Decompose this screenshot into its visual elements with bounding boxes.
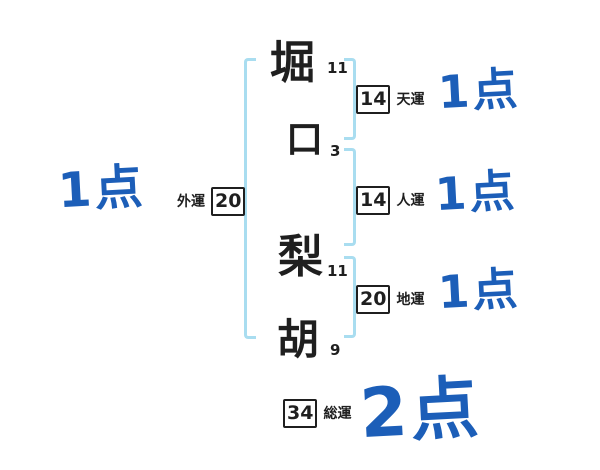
heaven-luck-row: 14 天運 xyxy=(356,85,424,114)
total-luck-label: 総運 xyxy=(323,407,351,421)
outer-luck-value-box: 20 xyxy=(211,187,245,216)
heaven-luck-value-box: 14 xyxy=(356,85,390,114)
name-fortune-diagram: 堀 11 口 3 梨 11 胡 9 14 天運 14 人運 20 地運 外運 2… xyxy=(0,0,600,470)
earth-luck-score: 1点 xyxy=(437,266,522,315)
earth-luck-row: 20 地運 xyxy=(356,285,424,314)
name-char-3: 梨 xyxy=(278,234,323,279)
person-luck-score: 1点 xyxy=(434,168,519,217)
person-luck-row: 14 人運 xyxy=(356,186,424,215)
person-luck-value-box: 14 xyxy=(356,186,390,215)
outer-luck-score: 1点 xyxy=(57,163,147,216)
earth-luck-label: 地運 xyxy=(396,293,424,307)
name-char-2: 口 xyxy=(286,121,323,158)
outer-luck-row: 外運 20 xyxy=(177,187,245,216)
stroke-count-2: 3 xyxy=(330,144,340,159)
name-char-4: 胡 xyxy=(277,319,319,361)
heaven-luck-score: 1点 xyxy=(437,66,522,115)
total-luck-score: 2点 xyxy=(358,375,483,449)
earth-luck-bracket xyxy=(344,256,356,338)
outer-luck-label: 外運 xyxy=(177,195,205,209)
total-luck-row: 34 総運 xyxy=(283,399,351,428)
person-luck-bracket xyxy=(344,148,356,246)
name-char-1: 堀 xyxy=(270,40,315,85)
total-luck-value-box: 34 xyxy=(283,399,317,428)
outer-luck-bracket xyxy=(244,58,256,339)
heaven-luck-bracket xyxy=(344,58,356,140)
heaven-luck-label: 天運 xyxy=(396,93,424,107)
person-luck-label: 人運 xyxy=(396,194,424,208)
earth-luck-value-box: 20 xyxy=(356,285,390,314)
stroke-count-4: 9 xyxy=(330,343,340,358)
